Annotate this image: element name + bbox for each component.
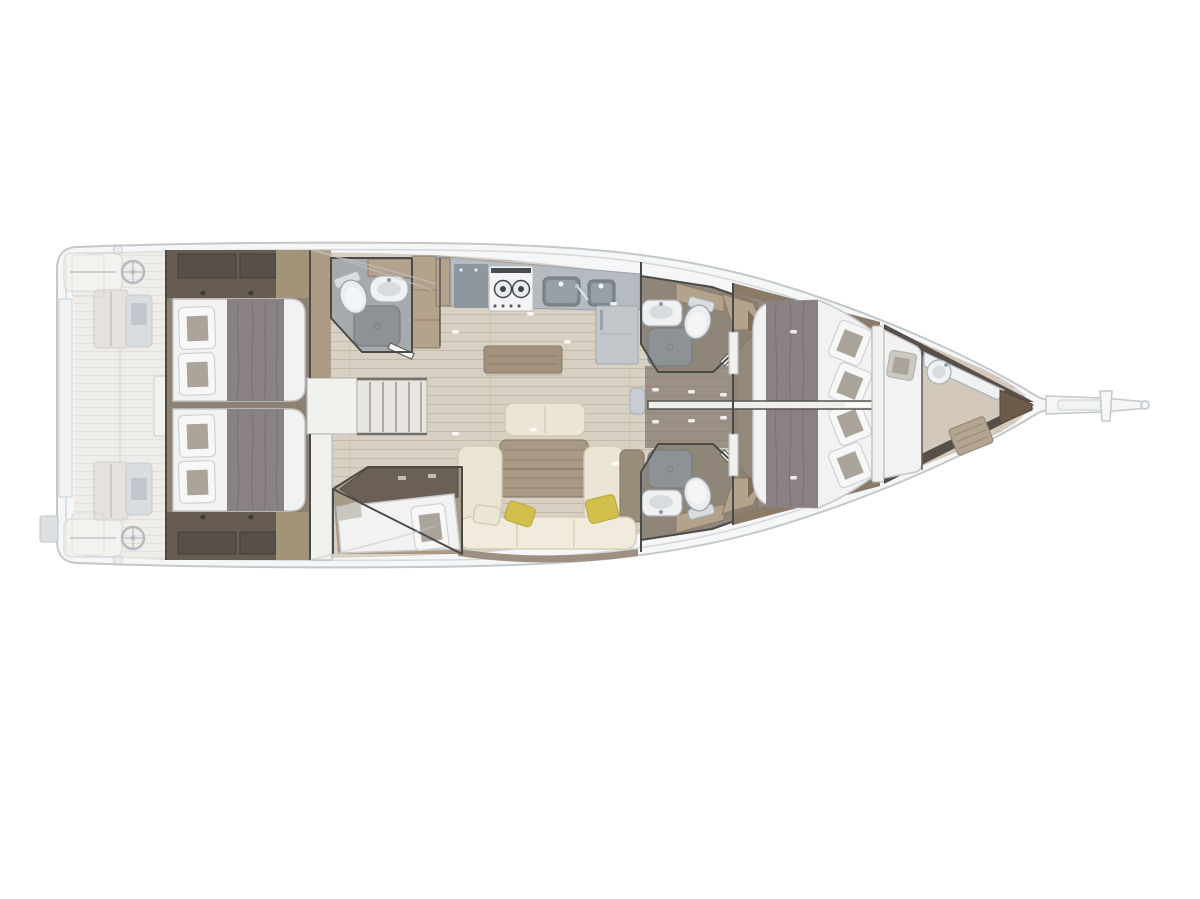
forward-bulkhead bbox=[872, 326, 884, 482]
forward-cabin-port bbox=[722, 283, 880, 409]
stove bbox=[489, 266, 533, 311]
anchor-roller bbox=[1058, 400, 1104, 410]
aft-cabin-starboard bbox=[166, 406, 310, 560]
reading-light bbox=[249, 515, 254, 520]
mast-post bbox=[630, 388, 645, 414]
winch-port bbox=[114, 246, 123, 255]
cockpit bbox=[64, 246, 166, 565]
cabin-door bbox=[729, 434, 738, 476]
reading-light bbox=[201, 515, 206, 520]
reading-light bbox=[249, 291, 254, 296]
centreline-wall bbox=[648, 401, 880, 409]
double-sink bbox=[543, 277, 615, 306]
dining-table bbox=[500, 440, 588, 497]
reading-light bbox=[201, 291, 206, 296]
cabin-door bbox=[729, 332, 738, 374]
yacht-floorplan-page: Overhead interior layout plan of a saili… bbox=[0, 0, 1200, 899]
liferaft-locker bbox=[40, 516, 58, 542]
forward-cabin-starboard bbox=[722, 399, 880, 525]
winch-starboard bbox=[114, 556, 123, 565]
bowsprit bbox=[1046, 391, 1149, 421]
bow-cabin bbox=[884, 324, 1034, 484]
duvet bbox=[227, 299, 284, 401]
pillow bbox=[178, 306, 215, 349]
pillow bbox=[178, 414, 215, 457]
companionway bbox=[307, 378, 427, 434]
helm-wheel-port bbox=[122, 261, 144, 283]
washbasin-round bbox=[927, 360, 951, 384]
sideboard bbox=[484, 346, 562, 376]
helm-wheel-starboard bbox=[122, 527, 144, 549]
yacht-floorplan: Overhead interior layout plan of a saili… bbox=[0, 0, 1200, 899]
cushion-cream bbox=[473, 504, 501, 525]
duvet bbox=[766, 404, 818, 508]
washbasin bbox=[642, 490, 682, 516]
pillow bbox=[178, 352, 215, 395]
companionway-hatch bbox=[154, 376, 166, 436]
entry-landing bbox=[307, 378, 357, 434]
pillow bbox=[178, 460, 215, 503]
refrigerator bbox=[596, 306, 638, 364]
duvet bbox=[766, 300, 818, 404]
duvet bbox=[227, 409, 284, 511]
bow-fitting bbox=[1100, 391, 1112, 421]
aft-cabin-port bbox=[166, 250, 310, 406]
pillow bbox=[886, 350, 917, 381]
washbasin bbox=[642, 300, 682, 326]
shower-tray bbox=[648, 328, 692, 366]
stairs bbox=[357, 380, 427, 434]
shower-tray bbox=[648, 450, 692, 488]
